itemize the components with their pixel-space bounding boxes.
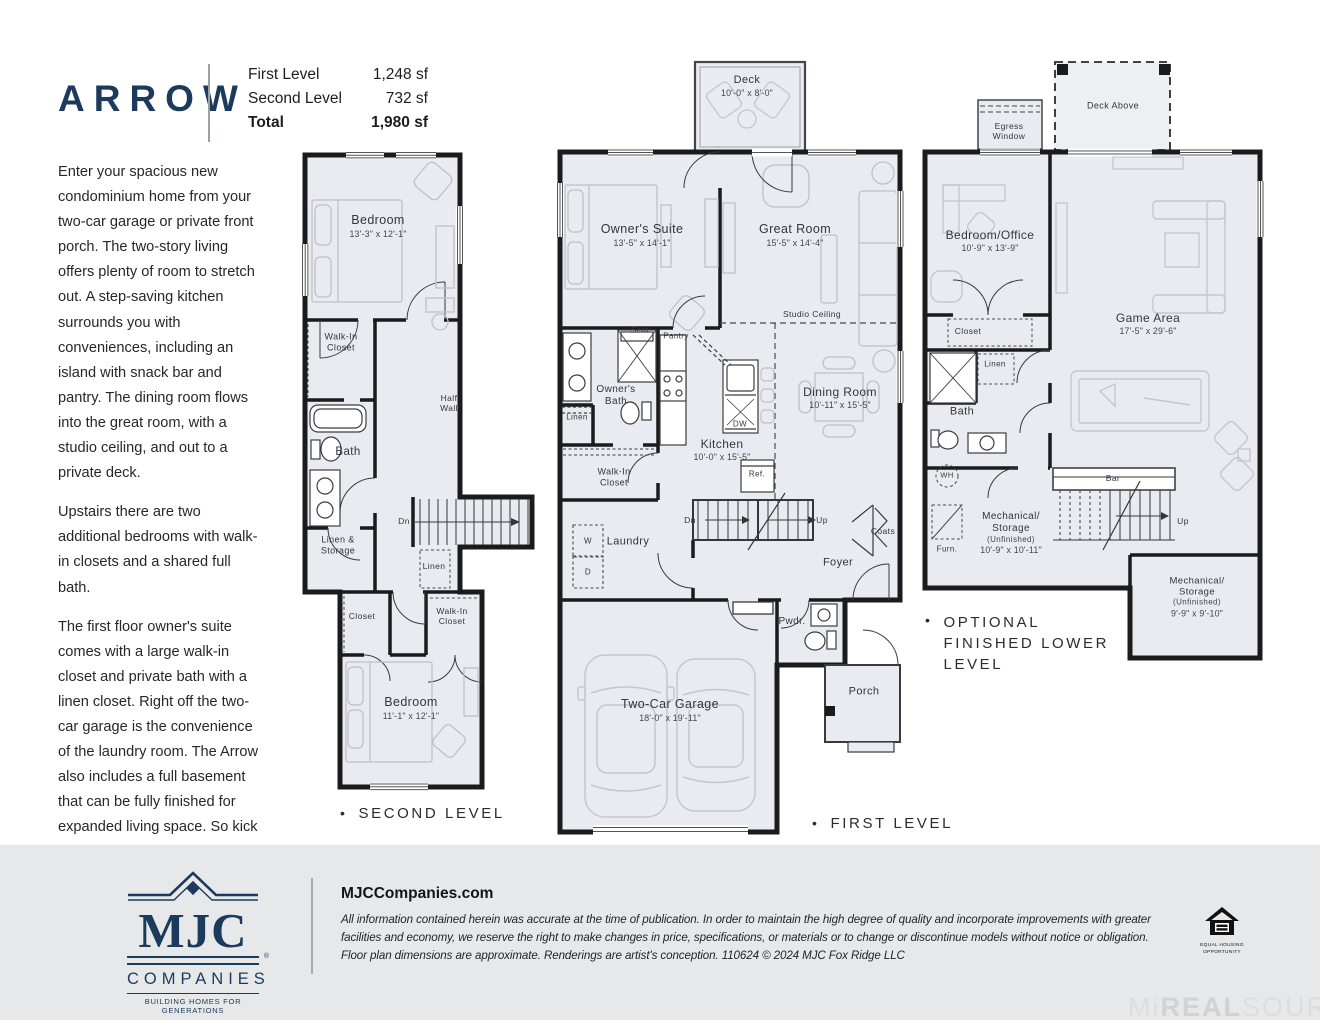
- eho-text-line2: OPPORTUNITY: [1196, 950, 1248, 956]
- bullet-icon: •: [925, 612, 933, 675]
- room-label-linen-storage: Linen & Storage: [309, 534, 367, 555]
- stat-row: Second Level 732 sf: [248, 90, 428, 108]
- room-label-owners-bath: Owner's Bath: [590, 384, 642, 408]
- room-label-linen-ll: Linen: [984, 359, 1006, 368]
- room-label-linen-1f: Linen: [566, 412, 588, 421]
- label-seat: Seat: [631, 325, 649, 334]
- floorplan-brochure: ARROW First Level 1,248 sf Second Level …: [0, 0, 1320, 1020]
- caption-lower-level: • OPTIONAL FINISHED LOWER LEVEL: [925, 612, 1112, 675]
- mirealsource-watermark: MiREALSOURCE: [1128, 992, 1320, 1020]
- room-label-walkin-1f: Walk-In Closet: [590, 466, 638, 487]
- room-label-walkin1: Walk-In Closet: [316, 331, 366, 352]
- mjc-companies-text: COMPANIES: [127, 970, 259, 989]
- label-water-heater: WH: [940, 472, 953, 481]
- label-stairs-up-1: Up: [816, 515, 828, 525]
- room-label-bedroom1: Bedroom13'-3" x 12'-1": [349, 213, 406, 239]
- label-stairs-dn-1: Dn: [684, 515, 696, 525]
- porch-structure: [825, 665, 900, 752]
- bullet-icon: •: [340, 805, 348, 822]
- room-label-garage: Two-Car Garage18'-0" x 19'-11": [621, 697, 719, 723]
- room-label-foyer: Foyer: [823, 557, 853, 570]
- room-label-coats: Coats: [871, 526, 895, 536]
- label-studio-ceiling: Studio Ceiling: [783, 309, 841, 319]
- room-label-owners-suite: Owner's Suite13'-5" x 14'-1": [601, 222, 684, 248]
- room-label-mech-storage-1: Mechanical/Storage (Unfinished)10'-9" x …: [980, 511, 1042, 555]
- stat-value: 1,980 sf: [371, 114, 428, 132]
- label-furnace: Furn.: [937, 544, 958, 553]
- label-washer: W: [584, 536, 592, 545]
- room-label-porch: Porch: [849, 686, 880, 699]
- label-deck-above: Deck Above: [1087, 101, 1139, 112]
- label-dw: DW: [733, 419, 747, 428]
- mjc-logo-rule: ®: [127, 956, 259, 965]
- marketing-description: Enter your spacious new condominium home…: [58, 160, 265, 905]
- stat-row-total: Total 1,980 sf: [248, 114, 428, 132]
- label-stairs-dn-2: Dn: [398, 516, 410, 526]
- page-title: ARROW: [58, 78, 247, 120]
- room-label-bath2f: Bath: [335, 446, 360, 460]
- mjc-tagline: BUILDING HOMES FOR GENERATIONS: [127, 993, 259, 1015]
- room-label-laundry: Laundry: [607, 536, 650, 549]
- label-dryer: D: [585, 567, 591, 576]
- website-link[interactable]: MJCCompanies.com: [341, 885, 1156, 903]
- room-label-bedroom-office: Bedroom/Office10'-9" x 13'-9": [946, 228, 1035, 254]
- mjc-logo: MJC ® COMPANIES BUILDING HOMES FOR GENER…: [127, 869, 259, 1015]
- room-label-mech-storage-2: Mechanical/Storage (Unfinished)9'-9" x 9…: [1169, 575, 1224, 618]
- room-label-closet-ll: Closet: [955, 326, 982, 336]
- room-label-closet-2f: Closet: [349, 611, 376, 621]
- room-label-dining: Dining Room10'-11" x 15'-5": [803, 385, 877, 411]
- stat-label: First Level: [248, 66, 320, 84]
- equal-housing-logo: EQUAL HOUSING OPPORTUNITY: [1196, 907, 1248, 956]
- bullet-icon: •: [812, 815, 820, 832]
- garage-door: [593, 825, 748, 835]
- label-stairs-up-ll: Up: [1177, 516, 1189, 526]
- room-label-great-room: Great Room15'-5" x 14'-4": [759, 222, 831, 248]
- legal-disclaimer: All information contained herein was acc…: [341, 911, 1156, 965]
- registered-mark: ®: [264, 953, 269, 960]
- room-label-linen-2f: Linen: [423, 561, 446, 571]
- footer-divider: [311, 878, 313, 974]
- equal-housing-house-icon: [1204, 907, 1240, 937]
- room-label-game-area: Game Area17'-5" x 29'-6": [1116, 311, 1180, 337]
- header-divider: [208, 64, 210, 142]
- room-label-bedroom2: Bedroom11'-1" x 12'-1": [383, 695, 439, 721]
- stat-label: Total: [248, 114, 284, 132]
- stat-label: Second Level: [248, 90, 342, 108]
- room-label-kitchen: Kitchen10'-0" x 15'-5": [693, 437, 750, 463]
- sqft-stats: First Level 1,248 sf Second Level 732 sf…: [248, 66, 428, 138]
- room-label-walkin2: Walk-In Closet: [428, 606, 476, 626]
- stat-value: 1,248 sf: [373, 66, 428, 84]
- room-label-pwdr: Pwdr.: [778, 616, 805, 628]
- description-paragraph: Upstairs there are two additional bedroo…: [58, 500, 265, 600]
- label-ref: Ref.: [749, 469, 765, 478]
- caption-second-level: • SECOND LEVEL: [340, 805, 505, 822]
- room-label-deck: Deck10'-0" x 8'-0": [721, 74, 773, 98]
- mjc-roof-icon: [127, 869, 259, 903]
- stat-value: 732 sf: [386, 90, 428, 108]
- room-label-half-wall: Half Wall: [432, 393, 466, 413]
- label-egress-window: Egress Window: [987, 121, 1031, 141]
- caption-first-level: • FIRST LEVEL: [812, 815, 953, 832]
- label-pantry: Pantry: [663, 331, 689, 340]
- eho-text-line1: EQUAL HOUSING: [1196, 943, 1248, 949]
- room-label-bath-ll: Bath: [950, 406, 974, 419]
- footer-band: MJC ® COMPANIES BUILDING HOMES FOR GENER…: [0, 845, 1320, 1020]
- label-bar: Bar: [1106, 473, 1120, 483]
- mjc-logo-text: MJC: [127, 908, 259, 953]
- stat-row: First Level 1,248 sf: [248, 66, 428, 84]
- description-paragraph: Enter your spacious new condominium home…: [58, 160, 265, 486]
